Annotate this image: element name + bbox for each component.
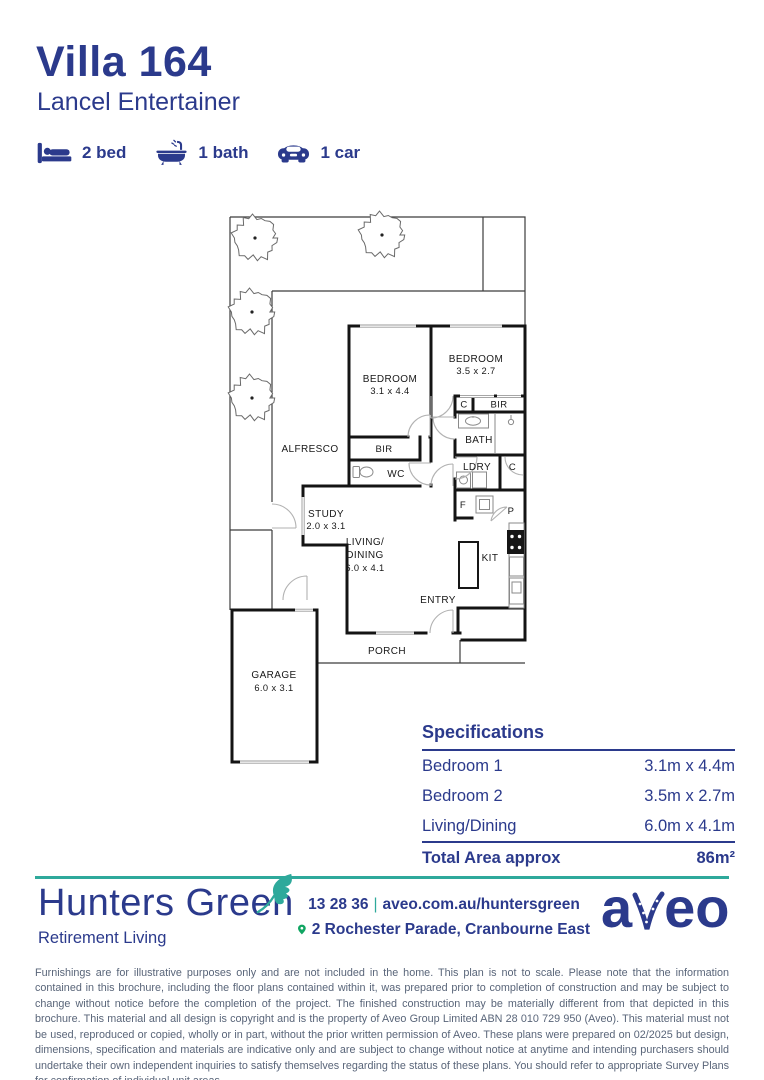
spec-label: Bedroom 2 — [422, 787, 503, 806]
closet2-label: C — [509, 462, 516, 473]
bed-icon — [36, 140, 73, 166]
feature-baths-label: 1 bath — [198, 143, 248, 163]
bath-basin — [459, 414, 489, 428]
bedroom1-door — [408, 415, 430, 437]
living-dims: 6.0 x 4.1 — [345, 563, 384, 573]
study-label: STUDY — [308, 509, 344, 520]
entry-door — [430, 610, 453, 633]
oak-leaf-icon — [252, 872, 296, 921]
hall-door — [431, 464, 453, 486]
page-title: Villa 164 — [36, 38, 212, 87]
spec-total-label: Total Area approx — [422, 849, 560, 868]
bath-icon — [154, 138, 189, 168]
wc-door — [409, 463, 431, 485]
entry-label: ENTRY — [420, 595, 456, 606]
bedroom1-dims: 3.1 x 4.4 — [370, 386, 409, 396]
fridge-label: F — [460, 500, 466, 511]
alfresco-label: ALFRESCO — [281, 444, 338, 455]
spec-value: 6.0m x 4.1m — [644, 817, 735, 836]
garage-door — [240, 760, 309, 764]
spec-total-value: 86m² — [696, 849, 735, 868]
pantry-label: P — [508, 506, 515, 517]
brand-logo: Hunters Green Retirement Living — [38, 884, 294, 948]
bedroom2-dims: 3.5 x 2.7 — [456, 366, 495, 376]
feature-beds-label: 2 bed — [82, 143, 126, 163]
garage-dims: 6.0 x 3.1 — [254, 683, 293, 693]
spec-value: 3.5m x 2.7m — [644, 787, 735, 806]
car-icon — [276, 140, 311, 166]
kitchen-sink — [510, 578, 524, 604]
alfresco-door — [272, 504, 296, 528]
spec-label: Bedroom 1 — [422, 757, 503, 776]
spec-row-living: Living/Dining 6.0m x 4.1m — [422, 811, 735, 841]
phone-number: 13 28 36 — [308, 896, 368, 913]
garage-label: GARAGE — [251, 670, 296, 681]
aveo-logo-a: a — [601, 880, 632, 936]
toilet-icon — [353, 467, 373, 478]
sliding-door — [460, 395, 494, 398]
contact-address: 2 Rochester Parade, Cranbourne East — [298, 920, 590, 939]
contact-phone-web: 13 28 36|aveo.com.au/huntersgreen — [298, 896, 590, 914]
bedroom1-label: BEDROOM — [363, 374, 417, 385]
bath-label: BATH — [465, 435, 493, 446]
aveo-logo: a eo — [601, 880, 730, 936]
separator: | — [369, 896, 383, 913]
brochure-page: Villa 164 Lancel Entertainer 2 bed — [0, 0, 764, 1080]
address-text: 2 Rochester Parade, Cranbourne East — [312, 921, 590, 939]
oven — [510, 557, 524, 576]
sliding-door — [497, 395, 521, 398]
aveo-leaf-v-icon — [631, 891, 665, 934]
laundry-appliances — [457, 472, 487, 488]
feature-beds: 2 bed — [36, 140, 126, 166]
study-dims: 2.0 x 3.1 — [306, 521, 345, 531]
spec-total-row: Total Area approx 86m² — [422, 843, 735, 872]
feature-summary: 2 bed 1 bath — [36, 138, 388, 168]
bir2-label: BIR — [490, 400, 507, 411]
kitchen-appliance — [476, 496, 493, 513]
disclaimer-text: Furnishings are for illustrative purpose… — [35, 966, 729, 1080]
room-labels: ALFRESCO BEDROOM 3.1 x 4.4 BEDROOM 3.5 x… — [251, 354, 516, 693]
garage-rear-door — [295, 608, 313, 611]
bath-door — [433, 417, 455, 439]
feature-cars: 1 car — [276, 140, 360, 166]
side-door — [283, 576, 307, 600]
window — [360, 324, 416, 328]
bedroom2-label: BEDROOM — [449, 354, 503, 365]
website-url: aveo.com.au/huntersgreen — [383, 896, 580, 913]
porch-label: PORCH — [368, 646, 406, 657]
specifications-table: Specifications Bedroom 1 3.1m x 4.4m Bed… — [422, 722, 735, 872]
kitchen-label: KIT — [482, 553, 499, 564]
cooktop-icon — [507, 530, 524, 554]
shower — [495, 414, 514, 453]
laundry-label: LDRY — [463, 462, 491, 473]
window — [301, 497, 305, 535]
location-pin-icon — [298, 920, 306, 939]
feature-baths: 1 bath — [154, 138, 248, 168]
island-bench — [459, 542, 478, 588]
spec-row-bedroom2: Bedroom 2 3.5m x 2.7m — [422, 781, 735, 811]
living-label-1: LIVING/ — [346, 537, 384, 548]
closet1-label: C — [460, 400, 467, 411]
spec-label: Living/Dining — [422, 817, 516, 836]
bir1-label: BIR — [375, 444, 392, 455]
floor-plan: ALFRESCO BEDROOM 3.1 x 4.4 BEDROOM 3.5 x… — [210, 205, 550, 775]
contact-block: 13 28 36|aveo.com.au/huntersgreen 2 Roch… — [298, 896, 590, 939]
spec-row-bedroom1: Bedroom 1 3.1m x 4.4m — [422, 751, 735, 781]
bedroom2-door — [431, 396, 453, 418]
wc-label: WC — [387, 469, 404, 480]
living-label-2: DINING — [346, 550, 383, 561]
aveo-logo-eo: eo — [664, 880, 729, 936]
spec-value: 3.1m x 4.4m — [644, 757, 735, 776]
specifications-heading: Specifications — [422, 722, 735, 743]
feature-cars-label: 1 car — [320, 143, 360, 163]
window — [450, 324, 502, 328]
window — [376, 631, 414, 635]
page-subtitle: Lancel Entertainer — [37, 88, 240, 117]
brand-tagline: Retirement Living — [38, 929, 294, 948]
